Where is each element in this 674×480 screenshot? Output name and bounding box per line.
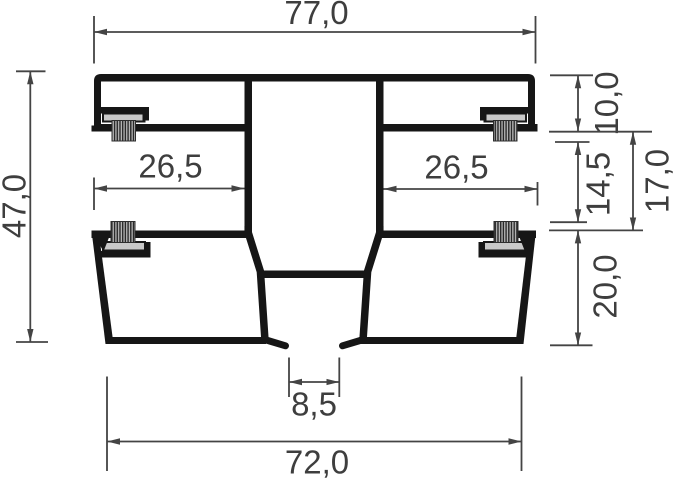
svg-text:26,5: 26,5 [424,149,488,186]
svg-text:17,0: 17,0 [639,149,674,213]
svg-text:72,0: 72,0 [285,444,349,480]
svg-text:26,5: 26,5 [138,148,202,185]
svg-text:20,0: 20,0 [587,254,624,318]
svg-text:14,5: 14,5 [580,152,617,216]
svg-text:8,5: 8,5 [291,386,337,423]
svg-text:77,0: 77,0 [284,0,348,31]
svg-text:47,0: 47,0 [0,174,33,238]
svg-text:10,0: 10,0 [588,71,625,135]
